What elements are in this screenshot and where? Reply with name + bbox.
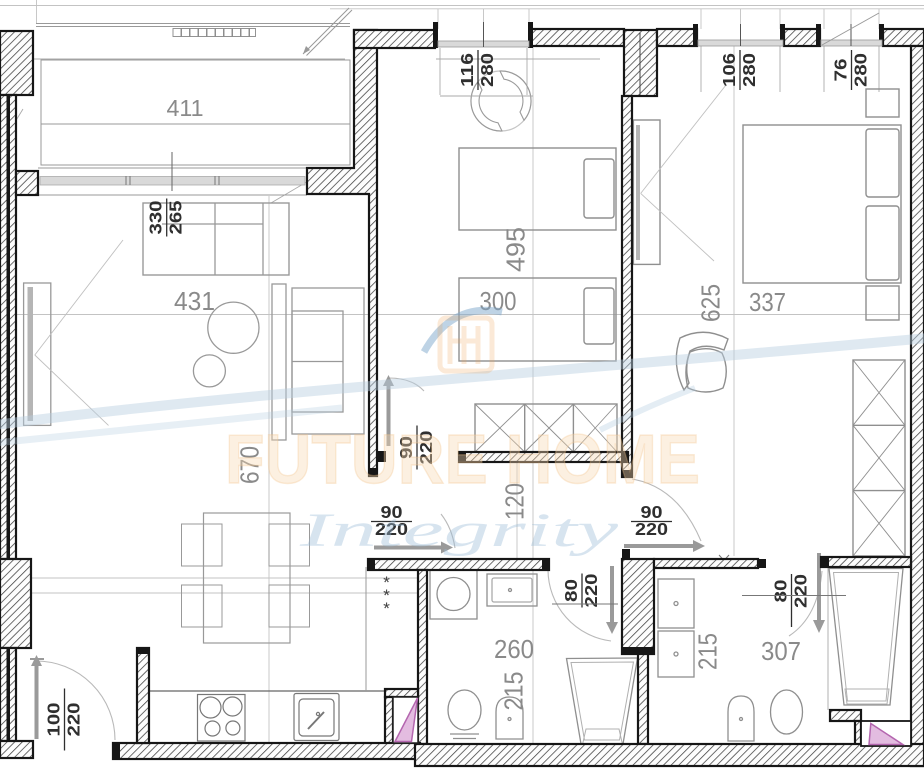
svg-text:330: 330 — [146, 200, 166, 234]
svg-text:80: 80 — [561, 579, 581, 602]
svg-text:*: * — [383, 599, 390, 618]
svg-text:265: 265 — [166, 200, 186, 234]
svg-text:220: 220 — [581, 573, 601, 607]
svg-text:100: 100 — [44, 702, 64, 736]
svg-text:76: 76 — [831, 58, 851, 81]
svg-text:215: 215 — [693, 633, 723, 670]
svg-text:Integrity: Integrity — [298, 504, 619, 557]
svg-text:411: 411 — [167, 95, 204, 121]
svg-text:106: 106 — [719, 53, 739, 87]
svg-text:215: 215 — [499, 672, 529, 711]
svg-text:280: 280 — [477, 53, 497, 87]
svg-text:FUTURE HOME: FUTURE HOME — [225, 420, 700, 498]
svg-text:431: 431 — [174, 286, 215, 316]
svg-text:260: 260 — [494, 634, 534, 664]
svg-text:280: 280 — [851, 53, 871, 87]
svg-text:80: 80 — [771, 579, 791, 602]
svg-text:337: 337 — [749, 287, 786, 317]
svg-text:495: 495 — [501, 227, 531, 272]
svg-text:116: 116 — [457, 53, 477, 87]
svg-text:220: 220 — [791, 574, 811, 608]
svg-text:220: 220 — [64, 702, 84, 736]
svg-text:280: 280 — [739, 53, 759, 87]
svg-text:307: 307 — [761, 636, 801, 666]
svg-text:625: 625 — [696, 284, 726, 322]
